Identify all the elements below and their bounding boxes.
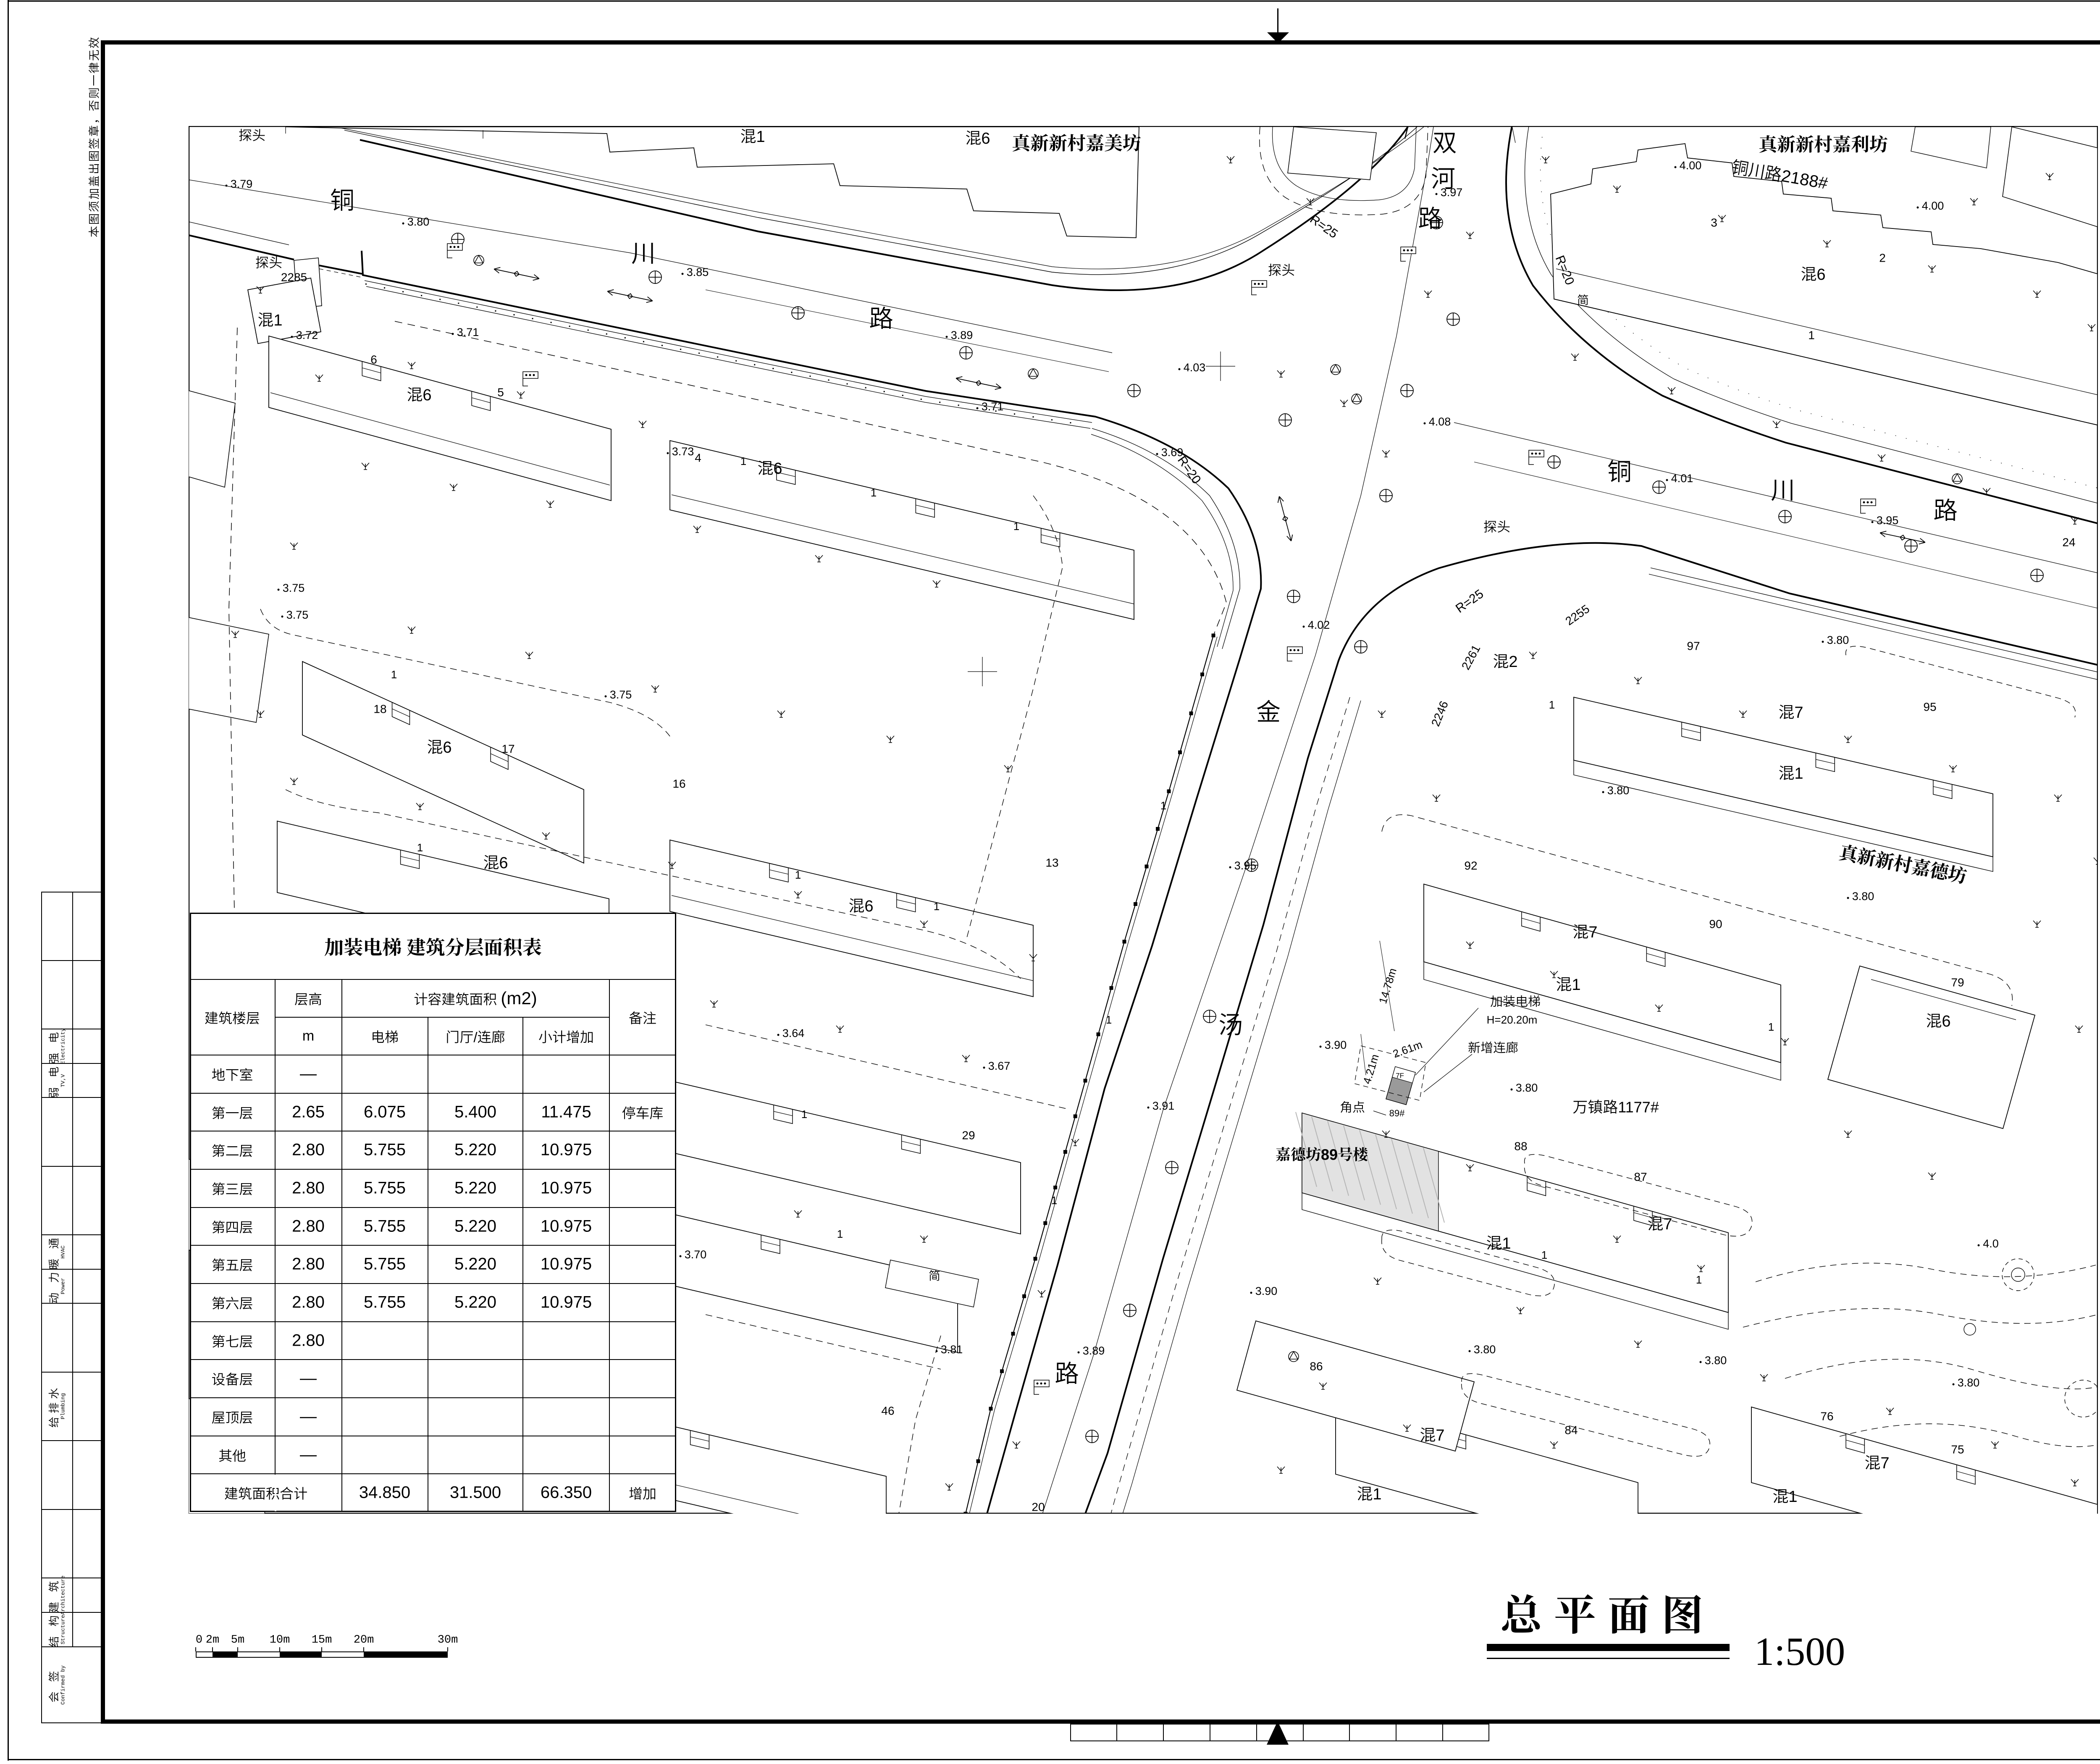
svg-text:混1: 混1 [1357,1486,1381,1503]
svg-text:3.81: 3.81 [941,1343,963,1356]
svg-text:1: 1 [801,1108,807,1121]
svg-text:2261: 2261 [1459,643,1483,672]
svg-text:混1: 混1 [1486,1235,1511,1252]
svg-text:3.80: 3.80 [1705,1354,1727,1367]
svg-text:3.89: 3.89 [1083,1344,1105,1357]
svg-text:1: 1 [391,668,397,681]
svg-text:3.71: 3.71 [982,400,1004,413]
svg-text:混1: 混1 [1778,765,1803,782]
svg-text:川: 川 [631,240,656,267]
svg-text:3.89: 3.89 [951,329,973,341]
svg-text:18: 18 [373,702,386,715]
svg-text:铜: 铜 [1607,458,1632,486]
svg-text:3.97: 3.97 [1441,186,1463,199]
svg-text:汤: 汤 [1218,1011,1243,1039]
svg-text:3.64: 3.64 [782,1027,805,1039]
svg-text:混7: 混7 [1647,1215,1672,1233]
svg-text:混6: 混6 [483,854,508,872]
svg-text:46: 46 [881,1404,894,1417]
svg-text:4.08: 4.08 [1429,415,1451,428]
svg-text:3.75: 3.75 [610,688,632,701]
svg-text:路: 路 [1418,205,1442,232]
svg-text:79: 79 [1951,976,1964,989]
svg-text:加装电梯: 加装电梯 [1490,995,1541,1009]
svg-text:89#: 89# [1389,1108,1405,1118]
svg-text:真新新村嘉德坊: 真新新村嘉德坊 [1837,843,1969,887]
svg-text:H=20.20m: H=20.20m [1487,1013,1538,1026]
svg-text:3.70: 3.70 [685,1248,707,1261]
svg-text:混7: 混7 [1420,1427,1444,1444]
svg-text:84: 84 [1564,1423,1578,1436]
svg-text:混1: 混1 [257,312,282,329]
svg-text:88: 88 [1514,1139,1527,1152]
svg-text:混7: 混7 [1778,704,1803,722]
svg-text:4.00: 4.00 [1680,159,1702,172]
svg-text:混6: 混6 [848,898,873,915]
svg-text:万镇路1177#: 万镇路1177# [1572,1099,1659,1116]
svg-text:1: 1 [1541,1249,1547,1261]
svg-text:川: 川 [1771,477,1795,504]
svg-text:2: 2 [1879,251,1886,264]
svg-text:3.72: 3.72 [296,329,318,341]
svg-text:3.90: 3.90 [1325,1039,1347,1051]
svg-text:3.85: 3.85 [687,266,709,278]
svg-text:3.95: 3.95 [1234,859,1257,872]
svg-text:混7: 混7 [1864,1454,1889,1472]
svg-text:探头: 探头 [1268,262,1295,278]
svg-text:探头: 探头 [239,128,265,143]
svg-text:1: 1 [837,1228,843,1240]
svg-text:20: 20 [1032,1500,1045,1513]
svg-text:90: 90 [1709,917,1722,930]
svg-text:3.95: 3.95 [1877,514,1899,527]
svg-text:双: 双 [1433,129,1457,157]
svg-text:1: 1 [1768,1021,1774,1033]
svg-text:3.91: 3.91 [1152,1100,1175,1112]
svg-text:17: 17 [501,742,514,755]
svg-text:路: 路 [869,305,893,332]
svg-text:嘉德坊89号楼: 嘉德坊89号楼 [1276,1146,1368,1163]
svg-text:1: 1 [1051,1194,1057,1207]
svg-text:R=25: R=25 [1453,587,1486,616]
svg-text:混6: 混6 [1801,266,1825,283]
svg-text:R=25: R=25 [1307,212,1340,241]
svg-text:混1: 混1 [740,128,765,146]
svg-text:6: 6 [370,353,377,366]
svg-text:5: 5 [497,386,504,399]
svg-text:探头: 探头 [255,255,282,270]
svg-text:1: 1 [1696,1273,1702,1286]
svg-text:3.71: 3.71 [457,326,479,339]
svg-text:1: 1 [1160,799,1166,812]
svg-text:2255: 2255 [1563,602,1592,628]
svg-text:4.01: 4.01 [1671,472,1693,485]
svg-text:1: 1 [1106,1013,1112,1026]
svg-text:3.79: 3.79 [231,178,253,190]
svg-text:3.67: 3.67 [988,1060,1011,1072]
svg-text:1: 1 [934,900,940,913]
svg-text:混1: 混1 [1772,1488,1797,1506]
svg-text:1: 1 [417,841,423,854]
svg-text:14.78m: 14.78m [1376,967,1399,1005]
svg-text:24: 24 [2062,535,2075,549]
svg-text:1: 1 [1549,698,1555,711]
svg-text:混7: 混7 [1572,924,1597,941]
svg-text:76: 76 [1820,1410,1833,1423]
svg-text:真新新村嘉美坊: 真新新村嘉美坊 [1012,134,1141,154]
svg-text:13: 13 [1045,856,1058,869]
svg-text:16: 16 [672,777,685,790]
svg-text:混6: 混6 [407,386,431,404]
svg-text:路: 路 [1055,1360,1079,1387]
svg-text:路: 路 [1933,497,1958,524]
svg-text:3.80: 3.80 [1958,1376,1980,1389]
svg-text:97: 97 [1687,639,1700,652]
svg-text:混6: 混6 [965,130,990,147]
svg-text:87: 87 [1634,1170,1647,1183]
svg-text:探头: 探头 [1483,519,1510,534]
svg-text:3.75: 3.75 [286,609,309,621]
svg-text:简: 简 [1577,294,1589,307]
svg-text:1: 1 [1013,520,1019,533]
svg-text:铜: 铜 [330,187,354,214]
svg-text:95: 95 [1923,700,1936,713]
svg-text:1: 1 [1808,328,1815,341]
svg-text:3: 3 [1711,216,1717,229]
svg-text:92: 92 [1464,859,1477,872]
svg-text:混1: 混1 [1556,976,1580,994]
svg-text:3.80: 3.80 [1516,1081,1538,1094]
svg-text:1: 1 [871,486,877,499]
svg-text:混2: 混2 [1493,653,1517,671]
svg-text:混6: 混6 [427,739,451,756]
svg-text:3.75: 3.75 [283,582,305,594]
svg-text:75: 75 [1951,1443,1964,1456]
svg-text:4: 4 [695,451,701,464]
svg-text:简: 简 [929,1269,940,1282]
svg-text:角点: 角点 [1340,1101,1365,1115]
svg-text:3.80: 3.80 [407,215,430,228]
svg-text:86: 86 [1310,1360,1323,1373]
svg-text:3.80: 3.80 [1474,1343,1496,1356]
svg-text:2285: 2285 [281,270,307,283]
svg-text:混6: 混6 [757,460,782,478]
svg-text:4.00: 4.00 [1922,199,1944,212]
svg-text:2246: 2246 [1429,699,1451,728]
svg-text:3.69: 3.69 [1161,446,1184,459]
svg-text:金: 金 [1256,698,1281,726]
svg-text:3.80: 3.80 [1827,634,1849,646]
svg-text:29: 29 [962,1129,975,1142]
svg-text:4.0: 4.0 [1983,1237,1999,1250]
svg-text:1: 1 [795,869,801,881]
svg-text:新增连廊: 新增连廊 [1468,1041,1518,1055]
svg-text:1: 1 [740,455,746,467]
svg-text:3.90: 3.90 [1255,1285,1278,1297]
svg-text:真新新村嘉利坊: 真新新村嘉利坊 [1759,135,1888,155]
svg-text:3.73: 3.73 [672,445,694,458]
svg-text:2.61m: 2.61m [1391,1038,1424,1060]
svg-text:混6: 混6 [1926,1013,1950,1030]
svg-text:4.03: 4.03 [1184,361,1206,374]
svg-text:7F: 7F [1396,1071,1404,1079]
svg-text:4.02: 4.02 [1308,619,1330,631]
svg-text:3.80: 3.80 [1607,784,1630,797]
svg-text:3.80: 3.80 [1852,890,1874,903]
